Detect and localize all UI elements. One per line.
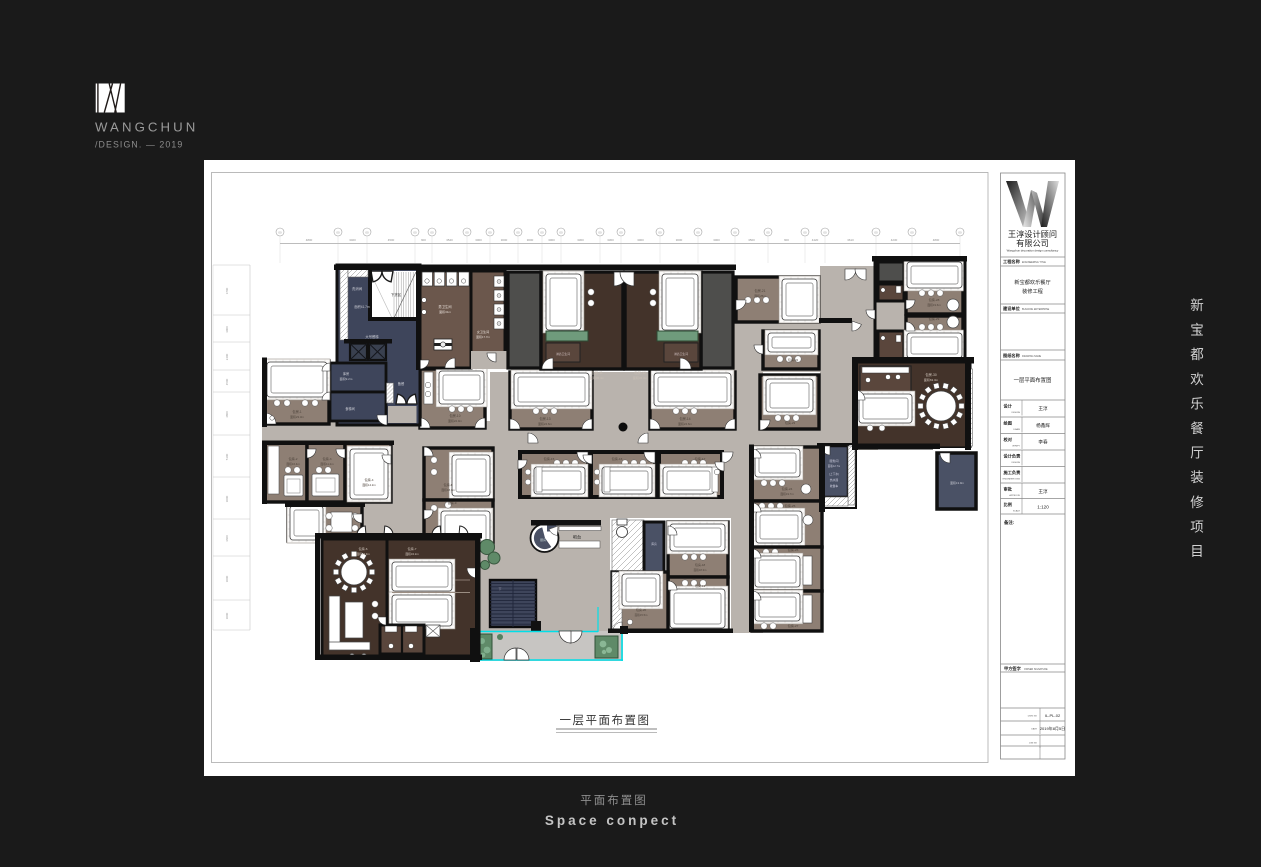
svg-text:BUILDING ENTERPRISE: BUILDING ENTERPRISE xyxy=(1022,308,1050,311)
svg-text:修: 修 xyxy=(1190,495,1204,510)
svg-text:00: 00 xyxy=(733,231,737,235)
svg-text:3000: 3000 xyxy=(676,238,683,242)
svg-text:包房-3: 包房-3 xyxy=(323,456,332,461)
svg-text:面积34.3m: 面积34.3m xyxy=(356,552,370,556)
svg-text:00: 00 xyxy=(696,231,700,235)
svg-text:餐: 餐 xyxy=(1190,421,1204,436)
svg-text:00: 00 xyxy=(430,231,434,235)
svg-text:00: 00 xyxy=(488,231,492,235)
svg-text:库房: 库房 xyxy=(343,371,349,376)
svg-text:包房-21: 包房-21 xyxy=(755,288,766,293)
svg-text:00: 00 xyxy=(336,231,340,235)
svg-text:包房-29: 包房-29 xyxy=(929,316,940,321)
svg-text:装修工程: 装修工程 xyxy=(1022,287,1043,295)
svg-text:00: 00 xyxy=(874,231,878,235)
svg-text:男卫生间: 男卫生间 xyxy=(438,304,451,309)
svg-text:一层平面布置图: 一层平面布置图 xyxy=(560,714,651,727)
svg-text:都: 都 xyxy=(1190,347,1204,362)
svg-text:面积12.7m: 面积12.7m xyxy=(828,464,840,468)
svg-text:包房-2: 包房-2 xyxy=(289,456,298,461)
svg-text:00: 00 xyxy=(823,231,827,235)
svg-text:面积15.5m: 面积15.5m xyxy=(635,613,649,617)
svg-text:APPROVE: APPROVE xyxy=(1009,494,1020,497)
svg-text:设计: 设计 xyxy=(1004,403,1013,410)
svg-text:包房-14: 包房-14 xyxy=(680,416,691,421)
svg-text:包房-26: 包房-26 xyxy=(788,547,799,552)
svg-text:3000: 3000 xyxy=(501,238,508,242)
svg-text:3610: 3610 xyxy=(847,238,854,242)
svg-text:包房-6: 包房-6 xyxy=(359,546,368,551)
svg-text:(上下水): (上下水) xyxy=(829,472,839,476)
svg-text:3000: 3000 xyxy=(225,495,229,502)
svg-text:5100: 5100 xyxy=(225,453,229,460)
svg-text:平面布置图: 平面布置图 xyxy=(580,794,648,807)
svg-text:包房-24: 包房-24 xyxy=(782,486,793,491)
svg-text:DESIGN: DESIGN xyxy=(1012,412,1021,414)
svg-text:3000: 3000 xyxy=(475,238,482,242)
svg-text:VERIFY: VERIFY xyxy=(1012,446,1020,448)
svg-text:包房-4: 包房-4 xyxy=(365,477,374,482)
svg-text:面积19.7m: 面积19.7m xyxy=(780,492,794,496)
svg-text:00: 00 xyxy=(278,231,282,235)
svg-text:包房-20: 包房-20 xyxy=(636,607,647,612)
svg-text:面积25m: 面积25m xyxy=(754,293,766,298)
svg-text:4500: 4500 xyxy=(388,238,395,242)
svg-text:面积22.9m: 面积22.9m xyxy=(448,418,462,423)
svg-text:包房-28: 包房-28 xyxy=(929,297,940,302)
svg-text:4420: 4420 xyxy=(812,238,819,242)
svg-text:目: 目 xyxy=(1190,544,1204,559)
svg-text:面积41.7m: 面积41.7m xyxy=(354,304,370,309)
svg-text:图纸名称: 图纸名称 xyxy=(1003,352,1021,359)
svg-text:4800: 4800 xyxy=(933,238,940,242)
svg-text:王淳: 王淳 xyxy=(1038,405,1048,412)
svg-text:面积63.3m: 面积63.3m xyxy=(924,377,939,382)
svg-text:包房-7: 包房-7 xyxy=(408,546,417,551)
svg-text:00: 00 xyxy=(803,231,807,235)
svg-text:3600: 3600 xyxy=(225,535,229,542)
svg-text:新: 新 xyxy=(1190,298,1204,313)
svg-text:包房-23: 包房-23 xyxy=(785,420,796,425)
svg-text:/DESIGN. — 2019: /DESIGN. — 2019 xyxy=(95,140,183,150)
svg-text:包房-8: 包房-8 xyxy=(444,482,453,487)
svg-text:2400: 2400 xyxy=(225,353,229,360)
svg-text:00: 00 xyxy=(658,231,662,235)
svg-text:3540: 3540 xyxy=(446,238,453,242)
svg-text:3000: 3000 xyxy=(548,238,555,242)
svg-text:4500: 4500 xyxy=(225,378,229,385)
svg-text:面积45.3m: 面积45.3m xyxy=(633,375,648,380)
svg-text:00: 00 xyxy=(598,231,602,235)
svg-text:淋浴卫生间: 淋浴卫生间 xyxy=(674,352,688,356)
svg-text:JOB NO: JOB NO xyxy=(1029,743,1037,745)
svg-text:厅: 厅 xyxy=(1190,446,1204,461)
svg-text:00: 00 xyxy=(465,231,469,235)
svg-text:包房-30: 包房-30 xyxy=(925,372,937,377)
svg-text:包房-27: 包房-27 xyxy=(788,623,799,628)
svg-text:1:120: 1:120 xyxy=(1037,505,1049,510)
svg-text:ENGINEERING TITLE: ENGINEERING TITLE xyxy=(1022,261,1046,264)
svg-text:00: 00 xyxy=(365,231,369,235)
svg-text:库房: 库房 xyxy=(651,542,657,546)
svg-text:3700: 3700 xyxy=(225,287,229,294)
svg-text:绘图: 绘图 xyxy=(1004,420,1012,427)
svg-text:00: 00 xyxy=(559,231,563,235)
svg-text:DATE: DATE xyxy=(1031,728,1037,731)
svg-text:包房-19: 包房-19 xyxy=(695,583,706,588)
svg-text:面积18.3m: 面积18.3m xyxy=(441,488,455,492)
svg-text:王淳设计顾问: 王淳设计顾问 xyxy=(1008,229,1057,239)
svg-text:面积17.7m: 面积17.7m xyxy=(476,334,490,339)
svg-text:宝: 宝 xyxy=(1190,323,1204,338)
svg-text:00: 00 xyxy=(516,231,520,235)
svg-text:项: 项 xyxy=(1190,519,1204,534)
svg-text:包房-10: 包房-10 xyxy=(450,413,461,418)
svg-text:甲方签字: 甲方签字 xyxy=(1004,665,1021,672)
svg-text:面积18.3m: 面积18.3m xyxy=(694,568,708,572)
svg-text:4800: 4800 xyxy=(306,238,313,242)
svg-text:备注:: 备注: xyxy=(1003,519,1015,526)
svg-text:包房-11: 包房-11 xyxy=(591,370,603,375)
svg-text:面积34.2m: 面积34.2m xyxy=(405,552,419,556)
svg-text:包房-18: 包房-18 xyxy=(695,562,706,567)
svg-text:3000: 3000 xyxy=(225,575,229,582)
svg-text:DWG NO: DWG NO xyxy=(1028,716,1038,718)
svg-text:包房-9: 包房-9 xyxy=(448,500,457,505)
svg-text:面积19.6m: 面积19.6m xyxy=(927,303,941,307)
svg-text:3000: 3000 xyxy=(527,238,534,242)
svg-text:热水器: 热水器 xyxy=(830,478,839,482)
svg-text:下: 下 xyxy=(498,587,501,591)
svg-text:工程名称: 工程名称 xyxy=(1003,258,1021,265)
svg-text:收餐车: 收餐车 xyxy=(830,484,839,488)
svg-text:面积24.6m: 面积24.6m xyxy=(678,421,692,426)
svg-text:包房-16: 包房-16 xyxy=(612,456,623,461)
svg-text:00: 00 xyxy=(958,231,962,235)
svg-text:DESIGN: DESIGN xyxy=(1012,462,1021,464)
svg-text:淋浴卫生间: 淋浴卫生间 xyxy=(556,352,570,356)
svg-text:食梯间: 食梯间 xyxy=(345,406,355,411)
svg-text:Wangchun decoration design con: Wangchun decoration design consultancy xyxy=(1007,249,1059,253)
svg-text:比例: 比例 xyxy=(1004,501,1012,508)
svg-text:面积11.2m: 面积11.2m xyxy=(320,462,334,466)
svg-text:一层平面布置图: 一层平面布置图 xyxy=(1014,376,1052,384)
svg-text:00: 00 xyxy=(910,231,914,235)
svg-text:3400: 3400 xyxy=(349,238,356,242)
svg-text:吧台: 吧台 xyxy=(573,534,581,541)
svg-text:校对: 校对 xyxy=(1004,436,1013,443)
svg-text:设计负责: 设计负责 xyxy=(1004,453,1022,460)
svg-text:面积23.3m: 面积23.3m xyxy=(290,414,304,419)
svg-text:服务间: 服务间 xyxy=(829,458,838,463)
svg-text:WANGCHUN: WANGCHUN xyxy=(95,120,198,135)
svg-text:备餐: 备餐 xyxy=(398,381,405,386)
svg-text:600: 600 xyxy=(784,238,789,242)
svg-text:3000: 3000 xyxy=(225,612,229,619)
svg-text:王淳: 王淳 xyxy=(1038,488,1048,495)
svg-text:00: 00 xyxy=(766,231,770,235)
svg-text:包房-22: 包房-22 xyxy=(788,357,799,362)
svg-text:00: 00 xyxy=(413,231,417,235)
svg-text:OWNER SIGNATURE: OWNER SIGNATURE xyxy=(1024,668,1048,671)
svg-text:IL-PL-02: IL-PL-02 xyxy=(1045,713,1061,718)
svg-text:包房-25: 包房-25 xyxy=(785,503,796,508)
svg-text:审批: 审批 xyxy=(1004,486,1013,493)
svg-text:2019年8月5日: 2019年8月5日 xyxy=(1040,725,1065,731)
svg-text:Space conpect: Space conpect xyxy=(545,813,679,828)
svg-text:3500: 3500 xyxy=(748,238,755,242)
svg-text:洗消间: 洗消间 xyxy=(352,286,363,291)
svg-text:女卫生间: 女卫生间 xyxy=(477,329,489,334)
svg-text:3300: 3300 xyxy=(577,238,584,242)
svg-text:包房-1: 包房-1 xyxy=(292,409,301,414)
svg-text:包房-12: 包房-12 xyxy=(634,370,646,375)
svg-text:面积24.6m: 面积24.6m xyxy=(538,421,552,426)
svg-text:包房-13: 包房-13 xyxy=(540,416,551,421)
svg-text:ENGINEER KING: ENGINEER KING xyxy=(1003,479,1021,481)
svg-text:包房-17: 包房-17 xyxy=(695,456,706,461)
svg-text:大号餐梯: 大号餐梯 xyxy=(365,334,379,339)
svg-text:厨房: 厨房 xyxy=(540,537,546,542)
svg-text:下货区: 下货区 xyxy=(391,292,402,297)
svg-text:SCALE: SCALE xyxy=(1013,510,1021,513)
svg-text:有限公司: 有限公司 xyxy=(1016,238,1049,248)
svg-text:00: 00 xyxy=(619,231,623,235)
svg-text:4800: 4800 xyxy=(225,411,229,418)
svg-text:面积31m: 面积31m xyxy=(439,309,451,314)
svg-text:DRAW: DRAW xyxy=(1013,428,1021,431)
svg-text:施工负责: 施工负责 xyxy=(1004,469,1022,476)
svg-text:乐: 乐 xyxy=(1190,396,1204,411)
svg-text:面积14.2m: 面积14.2m xyxy=(362,483,376,487)
svg-text:3000: 3000 xyxy=(637,238,644,242)
svg-text:3000: 3000 xyxy=(225,326,229,333)
svg-text:杨鑫辉: 杨鑫辉 xyxy=(1036,422,1050,429)
svg-text:DRAWING NAME: DRAWING NAME xyxy=(1022,355,1041,358)
svg-text:00: 00 xyxy=(540,231,544,235)
svg-text:600: 600 xyxy=(421,238,426,242)
svg-text:面积45.4m: 面积45.4m xyxy=(590,375,605,380)
svg-text:3000: 3000 xyxy=(713,238,720,242)
svg-text:3300: 3300 xyxy=(607,238,614,242)
svg-text:面积13.9m: 面积13.9m xyxy=(950,480,964,485)
svg-text:包房-15: 包房-15 xyxy=(544,456,555,461)
svg-text:装: 装 xyxy=(1190,470,1204,485)
svg-text:4230: 4230 xyxy=(891,238,898,242)
svg-text:面积16.4m: 面积16.4m xyxy=(286,462,300,466)
svg-text:面积9.2m: 面积9.2m xyxy=(340,376,353,381)
svg-text:建设单位: 建设单位 xyxy=(1002,305,1021,312)
svg-text:新宝都欢乐餐厅: 新宝都欢乐餐厅 xyxy=(1014,278,1050,286)
svg-text:李春: 李春 xyxy=(1038,439,1048,446)
svg-text:欢: 欢 xyxy=(1190,372,1204,387)
